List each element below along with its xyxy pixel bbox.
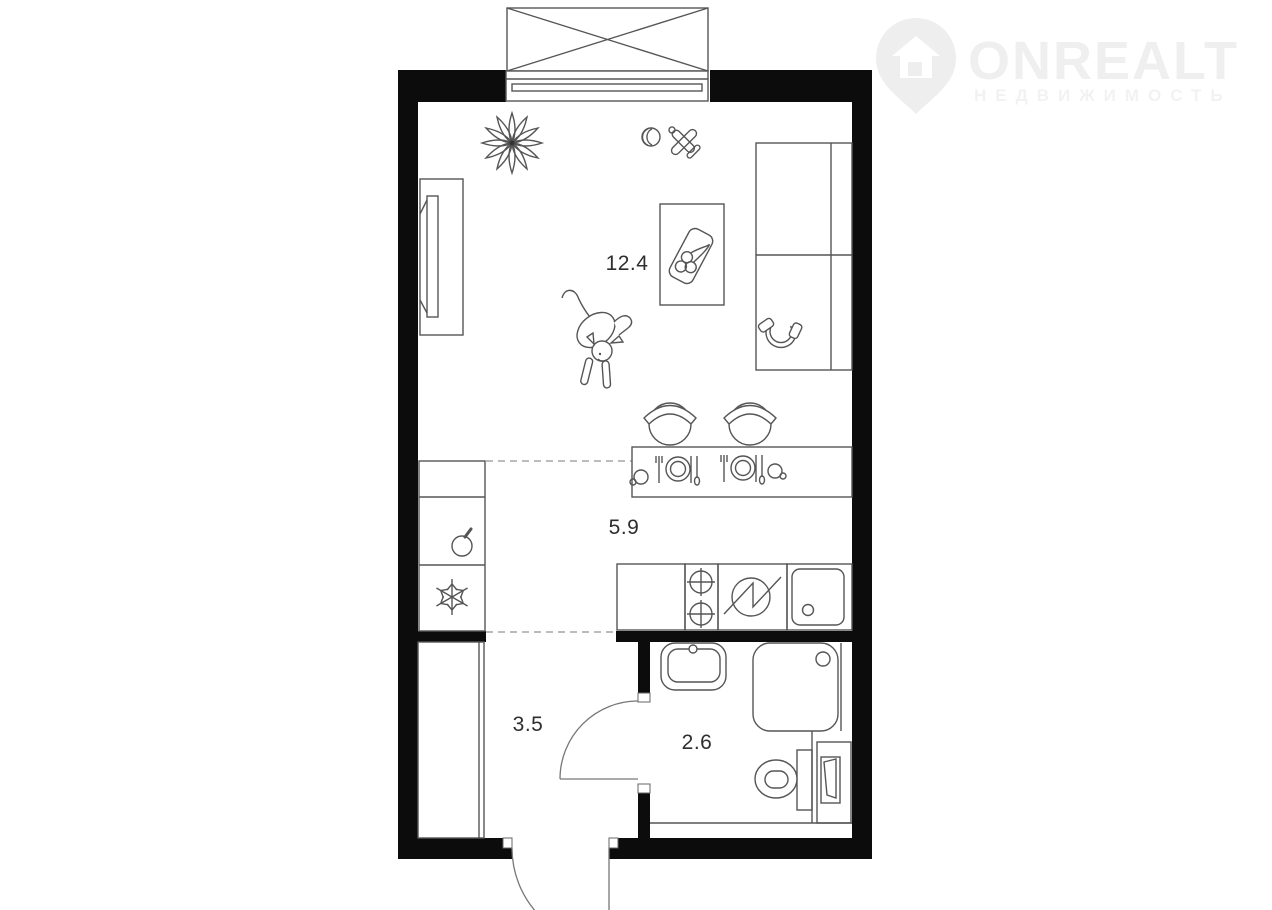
entrance-jamb-right: [609, 838, 618, 848]
wall-bottom: [398, 838, 872, 859]
room-label-kitchen: 5.9: [589, 517, 659, 538]
kitchen-counter: [617, 564, 852, 630]
interior-door-swing: [560, 701, 638, 779]
window-icon: [506, 71, 708, 101]
shower-icon: [753, 643, 841, 731]
tall-cabinet: [419, 461, 485, 631]
bath-jamb-top: [638, 693, 650, 702]
chair: [724, 403, 776, 445]
toy-plane-icon: [659, 117, 707, 165]
wall-kitchen-hall: [416, 631, 486, 642]
entrance-opening: [512, 838, 609, 859]
plant-icon: [482, 113, 542, 173]
room-label-bathroom: 2.6: [662, 732, 732, 753]
bath-jamb-bottom: [638, 784, 650, 793]
dining-table: [632, 447, 852, 497]
water-heater-icon: [821, 757, 840, 803]
fruit-tray-icon: [667, 226, 715, 286]
apple-icon: [452, 529, 472, 556]
wash-basin-icon: [661, 643, 726, 690]
wall-right: [852, 70, 872, 859]
fridge-snowflake-icon: [434, 579, 470, 615]
dog-icon: [562, 290, 632, 388]
floorplan-drawing: [0, 0, 1272, 910]
ball-toy-icon: [642, 128, 660, 146]
washing-machine-icon: [718, 564, 787, 630]
room-label-living: 12.4: [592, 253, 662, 274]
coffee-table: [660, 204, 724, 305]
room-label-hallway: 3.5: [493, 714, 563, 735]
tv-console: [420, 179, 463, 335]
balcony-icon: [507, 8, 708, 71]
entrance-jamb-left: [503, 838, 512, 848]
toilet-icon: [755, 750, 812, 810]
headphones-icon: [757, 317, 802, 347]
chair: [644, 403, 696, 445]
kitchen-sink-icon: [787, 564, 852, 630]
wall-left: [398, 70, 418, 859]
wall-top-right: [710, 70, 872, 102]
stove-icon: [685, 564, 718, 630]
wall-bath-left-lower: [638, 793, 650, 838]
floorplan-canvas: ONREALT НЕДВИЖИМОСТЬ: [0, 0, 1272, 910]
wall-bath-left-upper: [638, 642, 650, 693]
wall-kitchen-bath: [616, 631, 852, 642]
wardrobe: [418, 642, 484, 838]
